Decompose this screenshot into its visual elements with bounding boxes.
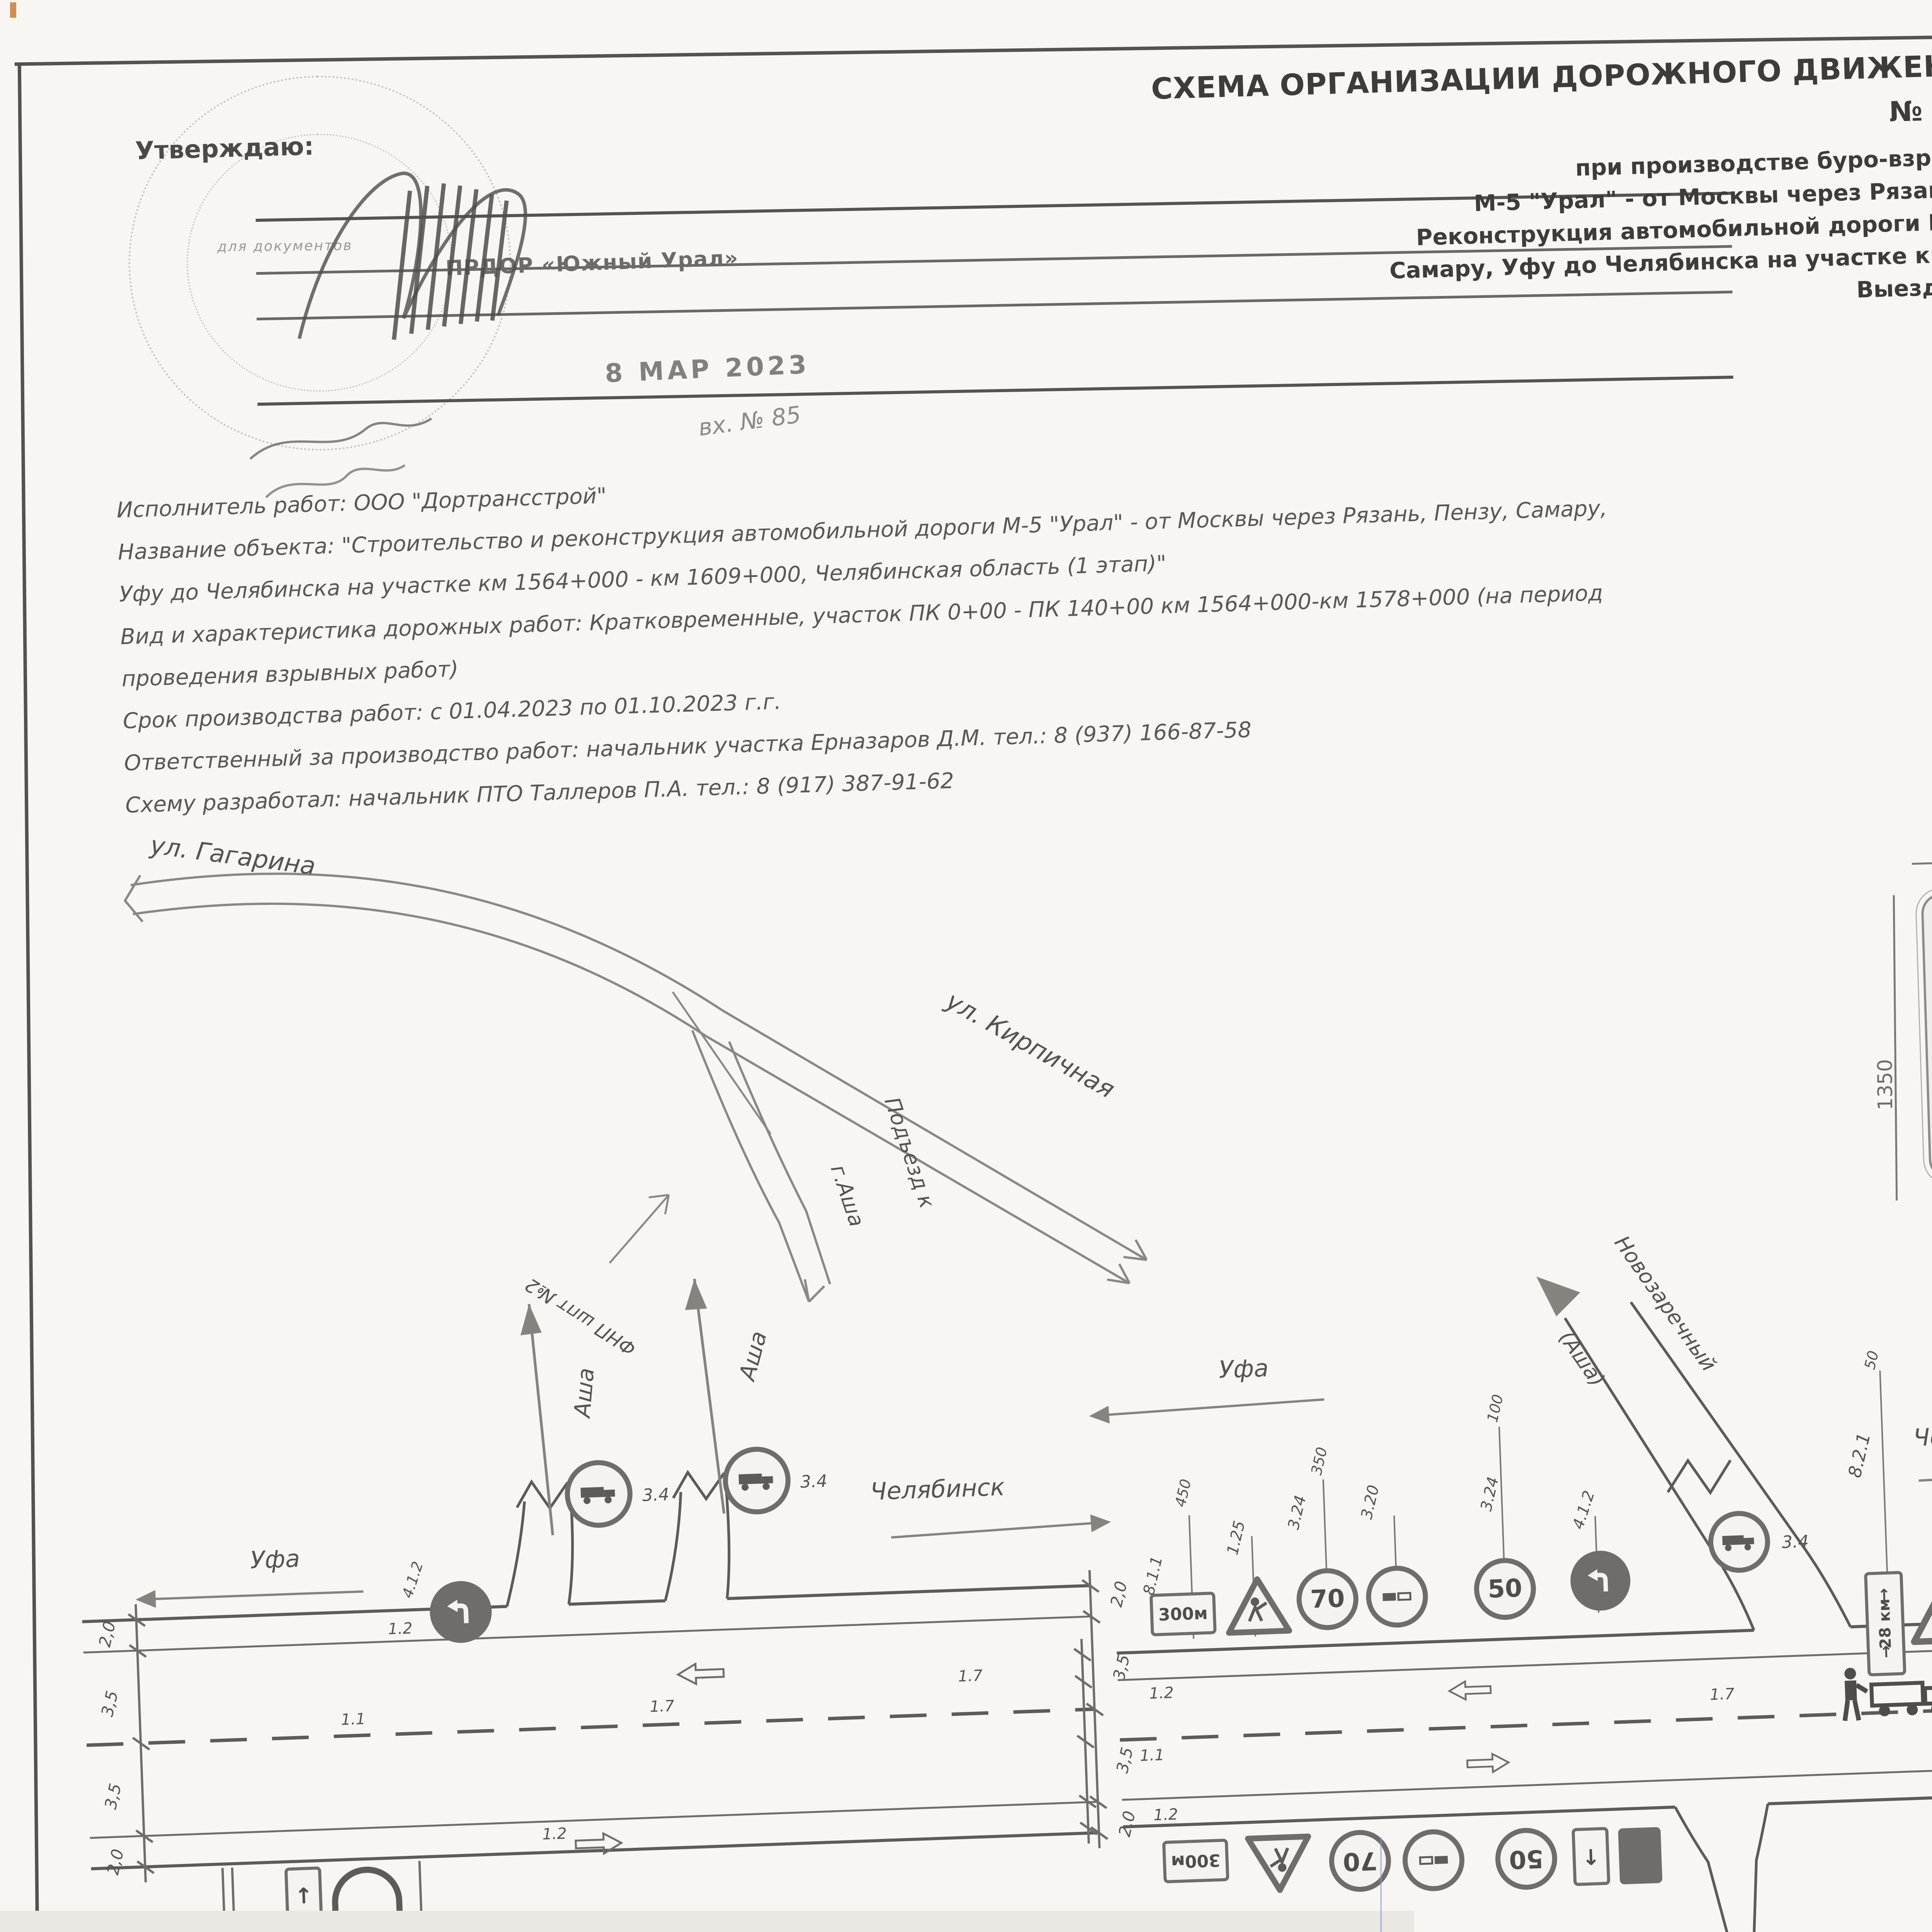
worker-icon xyxy=(1833,1665,1869,1724)
left-dir-chel: Челябинск xyxy=(870,1473,1005,1505)
left-mark-17-2: 1.7 xyxy=(958,1667,983,1685)
speed-50-text: 50 xyxy=(1487,1574,1523,1604)
left-code-34-1: 3.4 xyxy=(642,1485,670,1505)
lane-arrow-left-icon xyxy=(675,1660,726,1687)
mid-dir-ufa: Уфа xyxy=(1218,1354,1269,1384)
mid-mark-12-top: 1.2 xyxy=(1149,1684,1174,1702)
board1-width-dim-line xyxy=(1912,855,1932,865)
mid-bot-plate-300m-text: 300м xyxy=(1171,1850,1221,1872)
left-mark-12-bot: 1.2 xyxy=(542,1825,567,1843)
speed-70-text: 70 xyxy=(1310,1584,1345,1614)
speed-70-bot-text: 70 xyxy=(1342,1846,1378,1876)
mid-plate-300m: 300м xyxy=(1150,1592,1217,1636)
car-outline-icon xyxy=(1397,1592,1412,1601)
roadworks-triangle-icon xyxy=(1907,1576,1932,1647)
mid-mark-17: 1.7 xyxy=(1709,1685,1735,1704)
left-mark-12-top: 1.2 xyxy=(388,1619,413,1638)
left-dir-asha-1: Аша xyxy=(569,1367,599,1418)
warning-board-asha-minyar-sim: ВНИМАНИЕ! ДВИЖЕНИЕ ЛЕГКОВЫХ ТРАНСПОРТНЫХ… xyxy=(1921,886,1932,1180)
drawing-sheet: для документов Утверждаю: ПРДОР «Южный У… xyxy=(0,0,1932,1932)
dump-truck-icon xyxy=(1868,1673,1932,1719)
road-diagram-middle: Уфа Новозаречный (Аша) 450 350 100 50 8.… xyxy=(1045,1235,1932,1932)
lane-arrow-left-icon xyxy=(1446,1678,1493,1702)
truck-icon xyxy=(736,1469,777,1493)
scan-strip xyxy=(0,1911,1414,1932)
mid-plate-821: ↑ 28 км ↑ xyxy=(1864,1571,1906,1676)
car-icon xyxy=(1435,1856,1448,1864)
roadworks-triangle-icon xyxy=(1222,1573,1294,1638)
lane-arrow-right-icon xyxy=(1464,1751,1512,1775)
left-dir-ufa: Уфа xyxy=(250,1544,300,1575)
turn-left-arrow-icon xyxy=(445,1596,477,1628)
turn-left-arrow-icon xyxy=(1585,1565,1616,1596)
car-outline-icon xyxy=(1419,1856,1434,1865)
roadworks-triangle-flipped-icon xyxy=(1243,1832,1315,1896)
car-icon xyxy=(1383,1593,1396,1601)
mid-bot-plate-300m: 300м xyxy=(1162,1838,1230,1883)
board1-height-dim-line xyxy=(1893,895,1898,1201)
truck-icon xyxy=(578,1482,619,1506)
scanned-document-page: для документов Утверждаю: ПРДОР «Южный У… xyxy=(0,0,1932,1932)
mid-code-34: 3.4 xyxy=(1781,1532,1809,1552)
mid-bot-arrow-sign: ↑ xyxy=(1571,1827,1610,1886)
title-block: СХЕМА ОРГАНИЗАЦИИ ДОРОЖНОГО ДВИЖЕНИЯ И О… xyxy=(1114,24,1932,324)
truck-icon xyxy=(1720,1531,1758,1553)
scan-color-speck xyxy=(10,2,16,18)
mid-bot-dark-sign xyxy=(1618,1827,1662,1884)
left-code-34-2: 3.4 xyxy=(800,1471,828,1492)
left-mark-11: 1.1 xyxy=(341,1710,366,1729)
board1-height-dim: 1350 xyxy=(1874,1059,1897,1111)
mid-mark-11: 1.1 xyxy=(1139,1746,1165,1765)
plate-28km: 28 км xyxy=(1875,1598,1895,1649)
mid-mark-12-bot: 1.2 xyxy=(1153,1806,1178,1824)
right-dir-chel: Челябинск xyxy=(1913,1419,1932,1452)
left-mark-17-1: 1.7 xyxy=(650,1697,675,1716)
lane-arrow-right-icon xyxy=(573,1830,624,1857)
board1-title: ВНИМАНИЕ! xyxy=(1923,898,1932,927)
road-diagram-left: Уфа Челябинск Аша Аша 4.1.2 3.4 3.4 2,0 … xyxy=(62,1353,1133,1932)
speed-50-bot-text: 50 xyxy=(1509,1844,1544,1874)
scan-blue-line xyxy=(1380,1837,1382,1932)
mid-plate-300m-text: 300м xyxy=(1158,1603,1208,1625)
